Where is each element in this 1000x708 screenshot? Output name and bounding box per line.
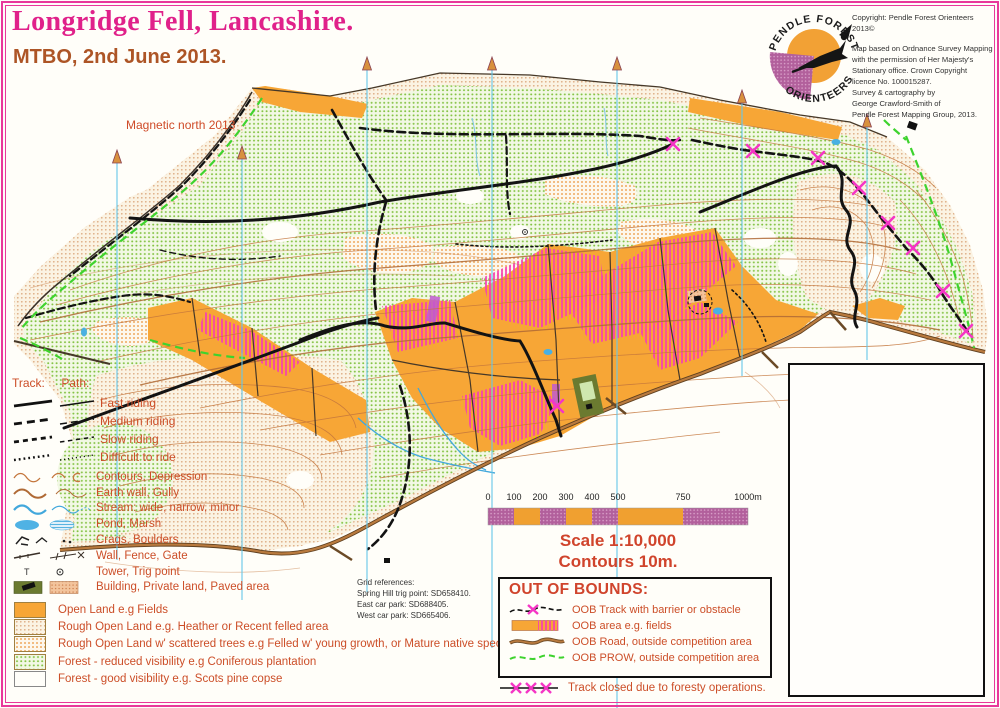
copyright-line: licence No. 100015287.: [852, 76, 996, 87]
open-land-swatch: [14, 602, 46, 618]
oob-legend-box: OUT OF BOUNDS: OOB Track with barrier or…: [498, 577, 772, 678]
grid-references: Grid references: Spring Hill trig point:…: [357, 577, 471, 621]
north-arrow-icon: [613, 57, 622, 70]
north-arrow-icon: [738, 90, 747, 103]
road-spur: [762, 352, 778, 368]
stream-symbol: [12, 501, 90, 516]
grid-ref-header: Grid references:: [357, 577, 471, 588]
building-private-paved-symbol: [12, 580, 90, 595]
rough-open-swatch: [14, 619, 46, 635]
slow-riding-line-sample: [12, 432, 96, 446]
legend-label: Building, Private land, Paved area: [96, 581, 269, 593]
copyright-line: Copyright: Pendle Forest Orienteers 2013…: [852, 12, 996, 34]
page-title: Longridge Fell, Lancashire.: [12, 6, 354, 38]
legend-label: Crags, Boulders: [96, 534, 178, 546]
building: [907, 121, 918, 131]
copyright-line: with the permission of Her Majesty's: [852, 54, 996, 65]
forest-reduced-swatch: [14, 654, 46, 670]
legend-label: Open Land e.g Fields: [58, 604, 168, 616]
grid-ref-line: West car park: SD665406.: [357, 610, 471, 621]
legend-label: Rough Open Land w' scattered trees e.g F…: [58, 638, 516, 650]
copyright-line: Stationary office. Crown Copyright: [852, 65, 996, 76]
legend-label: Earth wall, Gully: [96, 487, 179, 499]
scale-tick-label: 200: [532, 492, 547, 502]
forest-good-visibility-clearing: [860, 254, 884, 282]
legend-symbols: Contours, Depression Earth wall, Gully S…: [12, 469, 269, 595]
track-column-header: Track:: [12, 376, 58, 390]
magnetic-north-label: Magnetic north 2013: [126, 118, 235, 132]
grid-ref-line: East car park: SD688405.: [357, 599, 471, 610]
tower-glyph: T: [24, 567, 30, 577]
legend-label: Difficult to ride: [100, 450, 176, 464]
legend-label: Wall, Fence, Gate: [96, 550, 188, 562]
scale-tick-label: 500: [610, 492, 625, 502]
scale-tick-label: 1000m: [734, 492, 762, 502]
legend-label: Forest - good visibility e.g. Scots pine…: [58, 673, 282, 685]
legend-label: Slow riding: [100, 432, 159, 446]
rough-open-scattered-swatch: [14, 636, 46, 652]
legend-label: Rough Open Land e.g. Heather or Recent f…: [58, 621, 328, 633]
building: [704, 303, 709, 307]
legend-label: OOB PROW, outside competition area: [572, 652, 759, 664]
earthwall-gully-symbol: [12, 485, 90, 500]
page-subtitle: MTBO, 2nd June 2013.: [13, 46, 226, 69]
scale-tick-label: 400: [584, 492, 599, 502]
contours-text: Contours 10m.: [486, 552, 750, 572]
forest-good-visibility-clearing: [286, 471, 314, 489]
pond-marsh-symbol: [12, 517, 90, 532]
tower-trig-symbol: T: [12, 564, 90, 579]
pond: [832, 139, 841, 145]
north-arrow-icon: [113, 150, 122, 163]
legend-label: Pond, Marsh: [96, 518, 161, 530]
track-closed-symbol: [498, 681, 560, 695]
copyright-block: Copyright: Pendle Forest Orienteers 2013…: [852, 12, 996, 120]
north-arrow-icon: [488, 57, 497, 70]
oob-area-symbol: [508, 618, 566, 633]
contours-depression-symbol: [12, 469, 90, 484]
oob-track-symbol: [508, 602, 566, 617]
grid-ref-line: Spring Hill trig point: SD658410.: [357, 588, 471, 599]
scale-tick-labels: 0 100 200 300 400 500 750 1000m: [486, 492, 756, 504]
forest-good-swatch: [14, 671, 46, 687]
legend-label: Contours, Depression: [96, 471, 207, 483]
wall-fence-gate-symbol: [12, 548, 90, 563]
building: [694, 295, 702, 301]
oob-road-symbol: [508, 634, 566, 649]
legend-label: OOB Road, outside competition area: [572, 636, 752, 648]
building: [384, 558, 390, 563]
path-column-header: Path:: [61, 376, 89, 390]
control-descriptions-box: [788, 363, 985, 697]
legend-label: Stream: wide, narrow, minor: [96, 502, 239, 514]
pond: [81, 328, 87, 337]
copyright-line: Map based on Ordnance Survey Mapping: [852, 43, 996, 54]
scale-tick-label: 100: [506, 492, 521, 502]
legend-label: Forest - reduced visibility e.g Conifero…: [58, 656, 316, 668]
track-closed-legend: Track closed due to foresty operations.: [498, 681, 766, 695]
copyright-line: George Crawford-Smith of: [852, 98, 996, 109]
scale-bar: [486, 505, 754, 529]
forest-good-visibility-clearing: [778, 252, 798, 276]
legend-label: Tower, Trig point: [96, 566, 180, 578]
copyright-line: Survey & cartography by: [852, 87, 996, 98]
scale-tick-label: 300: [558, 492, 573, 502]
oob-prow-symbol: [508, 650, 566, 665]
copyright-line: Pendle Forest Mapping Group, 2013.: [852, 109, 996, 120]
difficult-ride-line-sample: [12, 450, 96, 464]
medium-riding-line-sample: [12, 414, 96, 428]
pond: [544, 349, 553, 355]
crags-boulders-symbol: [12, 533, 90, 548]
legend-tracks: Track: Path: Fast riding Medium riding S…: [12, 376, 176, 466]
oob-title: OUT OF BOUNDS:: [509, 581, 648, 599]
north-arrow-icon: [363, 57, 372, 70]
legend-label: Fast riding: [100, 396, 156, 410]
legend-label: Track closed due to foresty operations.: [568, 682, 766, 694]
road-spur: [330, 546, 352, 560]
legend-label: Medium riding: [100, 414, 175, 428]
map-sheet: Longridge Fell, Lancashire. MTBO, 2nd Ju…: [0, 0, 1000, 708]
pond: [713, 308, 723, 315]
legend-label: OOB area e.g. fields: [572, 620, 672, 632]
scale-text: Scale 1:10,000: [486, 531, 750, 551]
fast-riding-line-sample: [12, 396, 96, 410]
scale-tick-label: 0: [485, 492, 490, 502]
scale-tick-label: 750: [675, 492, 690, 502]
legend-label: OOB Track with barrier or obstacle: [572, 604, 741, 616]
